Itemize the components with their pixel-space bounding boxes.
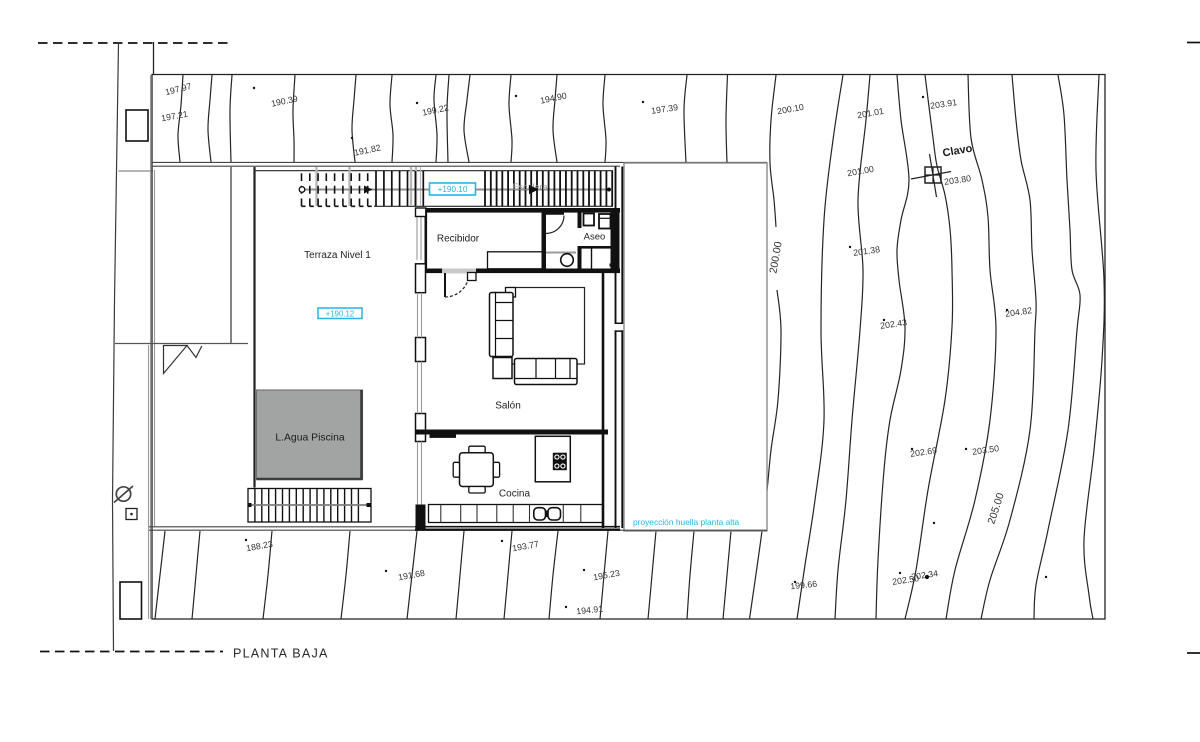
svg-text:Salón: Salón [495, 401, 521, 412]
svg-text:Recibidor: Recibidor [437, 234, 480, 245]
svg-text:Terraza Nivel 1: Terraza Nivel 1 [304, 250, 371, 261]
svg-text:PLANTA BAJA: PLANTA BAJA [233, 647, 329, 661]
svg-text:+190.10: +190.10 [438, 185, 468, 194]
svg-text:L.Agua Piscina: L.Agua Piscina [275, 433, 345, 444]
svg-text:Cocina: Cocina [499, 489, 531, 500]
svg-text:proyección huella planta alta: proyección huella planta alta [633, 517, 739, 527]
svg-text:Aseo: Aseo [584, 232, 606, 243]
svg-text:+190.12: +190.12 [326, 309, 354, 318]
